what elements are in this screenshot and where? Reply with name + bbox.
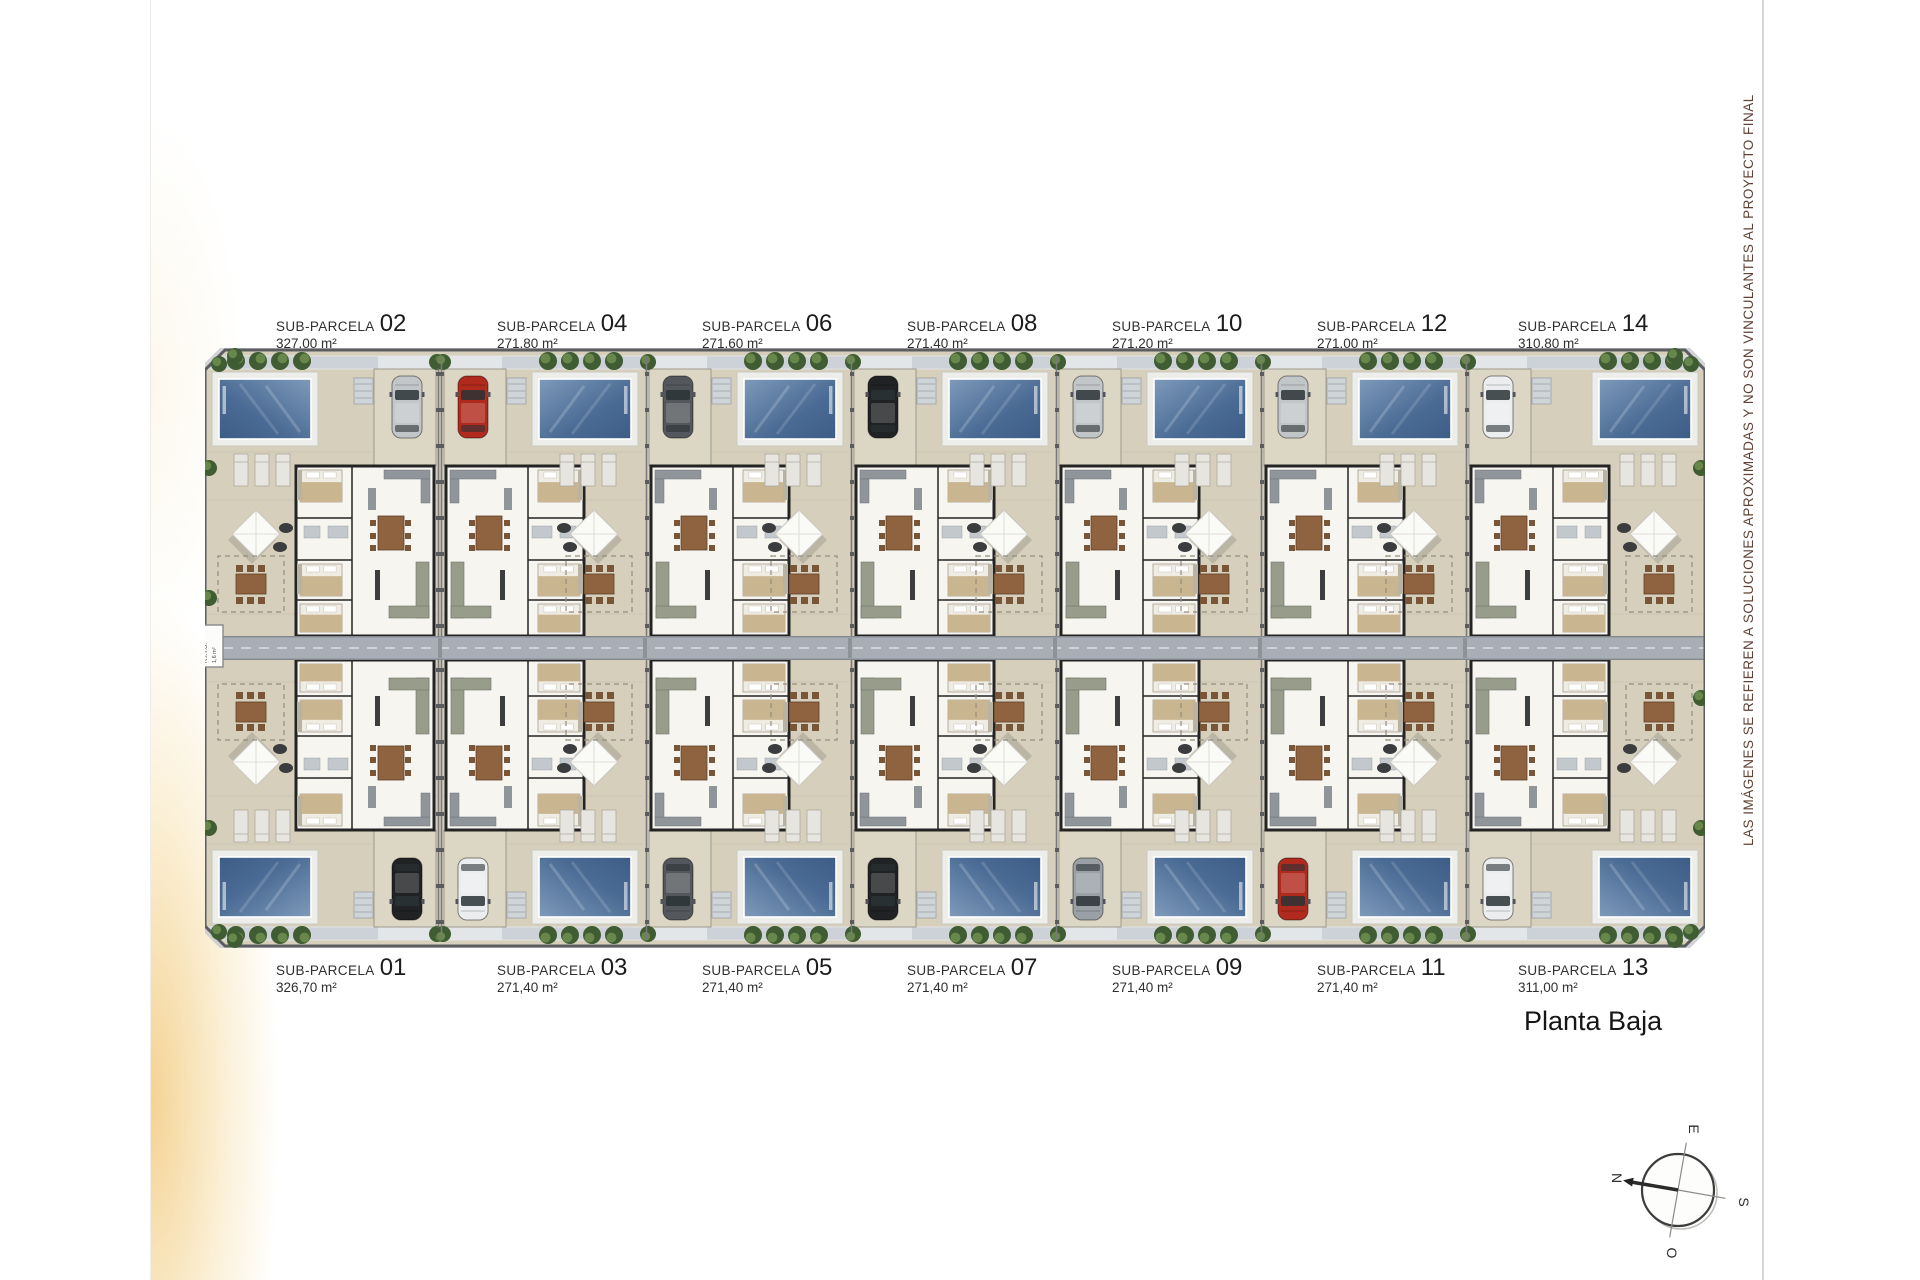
parcel-03	[435, 660, 645, 944]
parcel-area: 271,40 m²	[497, 980, 627, 995]
pool	[737, 372, 843, 446]
parcel-label-07: SUB-PARCELA07271,40 m²	[907, 954, 1037, 995]
parcel-area: 271,40 m²	[1112, 980, 1242, 995]
parcel-label-prefix: SUB-PARCELA	[497, 319, 596, 334]
compass-o-label: O	[1664, 1248, 1680, 1259]
sun-lounger	[1217, 454, 1231, 486]
house	[446, 466, 584, 636]
parcel-label-prefix: SUB-PARCELA	[1112, 963, 1211, 978]
pool	[942, 850, 1048, 924]
parcel-area: 326,70 m²	[276, 980, 406, 995]
parcel-10	[1050, 352, 1260, 636]
parcel-number: 02	[380, 310, 407, 338]
sun-lounger	[970, 810, 984, 842]
house	[296, 660, 434, 830]
entry-steps	[354, 892, 373, 918]
sun-lounger	[1196, 454, 1210, 486]
house	[856, 466, 994, 636]
house	[1061, 660, 1199, 830]
sun-lounger	[1422, 810, 1436, 842]
pool	[212, 372, 318, 446]
car	[1071, 858, 1106, 920]
sun-lounger	[1401, 454, 1415, 486]
sun-lounger	[1380, 810, 1394, 842]
car	[390, 376, 425, 438]
entry-steps	[917, 892, 936, 918]
pool	[1592, 850, 1698, 924]
entry-steps	[507, 378, 526, 404]
house	[1266, 466, 1404, 636]
parcel-label-10: SUB-PARCELA10271,20 m²	[1112, 310, 1242, 351]
house	[1471, 466, 1609, 636]
house	[446, 660, 584, 830]
sun-lounger	[1012, 810, 1026, 842]
car	[866, 376, 901, 438]
parcel-label-prefix: SUB-PARCELA	[1317, 963, 1416, 978]
bottom-parcel-labels: SUB-PARCELA01326,70 m²SUB-PARCELA03271,4…	[0, 954, 1920, 1000]
house	[1266, 660, 1404, 830]
parcel-label-prefix: SUB-PARCELA	[276, 963, 375, 978]
parcel-label-03: SUB-PARCELA03271,40 m²	[497, 954, 627, 995]
car	[390, 858, 425, 920]
page-left-edge	[150, 0, 151, 1280]
parcel-number: 10	[1216, 310, 1243, 338]
car	[1481, 376, 1516, 438]
sun-lounger	[1196, 810, 1210, 842]
parcel-label-11: SUB-PARCELA11271,40 m²	[1317, 954, 1446, 995]
pool	[1352, 372, 1458, 446]
sun-lounger	[602, 454, 616, 486]
sun-lounger	[581, 454, 595, 486]
entry-steps	[1327, 378, 1346, 404]
sun-lounger	[765, 454, 779, 486]
parcel-14	[1460, 352, 1705, 636]
house	[1061, 466, 1199, 636]
pool	[1147, 372, 1253, 446]
parcel-label-04: SUB-PARCELA04271,80 m²	[497, 310, 627, 351]
entry-steps	[354, 378, 373, 404]
sun-lounger	[1641, 810, 1655, 842]
parcel-label-prefix: SUB-PARCELA	[1317, 319, 1416, 334]
pool	[1147, 850, 1253, 924]
sun-lounger	[276, 810, 290, 842]
pool	[532, 850, 638, 924]
floor-label: Planta Baja	[1524, 1006, 1662, 1037]
parcel-number: 01	[380, 954, 407, 982]
site-plan: R.I.T.U.1,6 m²	[205, 348, 1705, 948]
parcel-label-prefix: SUB-PARCELA	[907, 963, 1006, 978]
parcel-01	[205, 660, 445, 944]
sun-lounger	[1401, 810, 1415, 842]
parcel-12	[1255, 352, 1465, 636]
pool	[737, 850, 843, 924]
parcel-number: 06	[806, 310, 833, 338]
ritu-box: R.I.T.U.1,6 m²	[205, 625, 223, 667]
entry-steps	[1532, 378, 1551, 404]
parcel-area: 271,40 m²	[702, 980, 832, 995]
entry-steps	[712, 378, 731, 404]
sun-lounger	[276, 454, 290, 486]
car	[1276, 858, 1311, 920]
pool	[532, 372, 638, 446]
entry-steps	[1122, 892, 1141, 918]
sun-lounger	[234, 454, 248, 486]
parcel-label-prefix: SUB-PARCELA	[497, 963, 596, 978]
entry-steps	[712, 892, 731, 918]
sun-lounger	[602, 810, 616, 842]
sun-lounger	[560, 454, 574, 486]
parcel-number: 13	[1622, 954, 1649, 982]
parcel-label-prefix: SUB-PARCELA	[276, 319, 375, 334]
sun-lounger	[765, 810, 779, 842]
parcel-number: 05	[806, 954, 833, 982]
sun-lounger	[1012, 454, 1026, 486]
disclaimer-text: LAS IMÁGENES SE REFIEREN A SOLUCIONES AP…	[1741, 34, 1756, 846]
pool	[1352, 850, 1458, 924]
pool	[1592, 372, 1698, 446]
pool	[942, 372, 1048, 446]
sun-lounger	[991, 454, 1005, 486]
sun-lounger	[234, 810, 248, 842]
parcel-label-prefix: SUB-PARCELA	[702, 963, 801, 978]
pool	[212, 850, 318, 924]
house	[651, 660, 789, 830]
parcel-number: 11	[1421, 954, 1446, 982]
sun-lounger	[786, 810, 800, 842]
parcel-area: 271,40 m²	[1317, 980, 1446, 995]
parcel-04	[435, 352, 645, 636]
parcel-number: 09	[1216, 954, 1243, 982]
house	[1471, 660, 1609, 830]
parcel-06	[640, 352, 850, 636]
parcel-02	[205, 352, 445, 636]
car	[1071, 376, 1106, 438]
parcel-label-05: SUB-PARCELA05271,40 m²	[702, 954, 832, 995]
parcel-label-prefix: SUB-PARCELA	[1518, 963, 1617, 978]
sun-lounger	[255, 810, 269, 842]
sun-lounger	[560, 810, 574, 842]
sun-lounger	[1662, 454, 1676, 486]
sun-lounger	[807, 810, 821, 842]
sun-lounger	[1620, 454, 1634, 486]
parcel-label-14: SUB-PARCELA14310,80 m²	[1518, 310, 1648, 351]
entry-steps	[917, 378, 936, 404]
parcel-07	[845, 660, 1055, 944]
house	[651, 466, 789, 636]
car	[456, 858, 491, 920]
parcel-08	[845, 352, 1055, 636]
parcel-label-06: SUB-PARCELA06271,60 m²	[702, 310, 832, 351]
parcel-13	[1460, 660, 1705, 944]
parcel-label-02: SUB-PARCELA02327,00 m²	[276, 310, 406, 351]
parcel-label-prefix: SUB-PARCELA	[1518, 319, 1617, 334]
sun-lounger	[1175, 454, 1189, 486]
compass-rose: NESO	[1593, 1110, 1763, 1280]
parcel-area: 271,40 m²	[907, 980, 1037, 995]
car	[456, 376, 491, 438]
sun-lounger	[1620, 810, 1634, 842]
parcel-label-prefix: SUB-PARCELA	[907, 319, 1006, 334]
parcel-label-09: SUB-PARCELA09271,40 m²	[1112, 954, 1242, 995]
entry-steps	[1327, 892, 1346, 918]
parcel-label-prefix: SUB-PARCELA	[1112, 319, 1211, 334]
compass-n-label: N	[1609, 1173, 1625, 1183]
sun-lounger	[786, 454, 800, 486]
parcel-11	[1255, 660, 1465, 944]
compass-s-label: S	[1736, 1197, 1752, 1206]
parcel-label-12: SUB-PARCELA12271,00 m²	[1317, 310, 1447, 351]
sun-lounger	[581, 810, 595, 842]
parcel-09	[1050, 660, 1260, 944]
car	[661, 376, 696, 438]
compass-e-label: E	[1686, 1124, 1702, 1133]
parcel-number: 14	[1622, 310, 1649, 338]
parcel-label-08: SUB-PARCELA08271,40 m²	[907, 310, 1037, 351]
car	[866, 858, 901, 920]
parcel-label-prefix: SUB-PARCELA	[702, 319, 801, 334]
page-right-edge	[1762, 0, 1764, 1280]
sun-lounger	[991, 810, 1005, 842]
entry-steps	[1122, 378, 1141, 404]
parcel-area: 311,00 m²	[1518, 980, 1648, 995]
sun-lounger	[1662, 810, 1676, 842]
sun-lounger	[1422, 454, 1436, 486]
parcel-number: 12	[1421, 310, 1448, 338]
sun-lounger	[255, 454, 269, 486]
parcel-number: 03	[601, 954, 628, 982]
sun-lounger	[1380, 454, 1394, 486]
house	[856, 660, 994, 830]
svg-text:R.I.T.U.: R.I.T.U.	[205, 643, 209, 663]
entry-steps	[1532, 892, 1551, 918]
parcel-number: 07	[1011, 954, 1038, 982]
parcel-number: 08	[1011, 310, 1038, 338]
car	[661, 858, 696, 920]
sun-lounger	[1641, 454, 1655, 486]
sun-lounger	[1175, 810, 1189, 842]
sun-lounger	[1217, 810, 1231, 842]
parcel-05	[640, 660, 850, 944]
parcel-number: 04	[601, 310, 628, 338]
svg-text:1,6 m²: 1,6 m²	[212, 647, 218, 663]
car	[1276, 376, 1311, 438]
entry-steps	[507, 892, 526, 918]
parcel-label-13: SUB-PARCELA13311,00 m²	[1518, 954, 1648, 995]
road	[205, 636, 1705, 660]
sun-lounger	[970, 454, 984, 486]
car	[1481, 858, 1516, 920]
sun-lounger	[807, 454, 821, 486]
house	[296, 466, 434, 636]
parcel-label-01: SUB-PARCELA01326,70 m²	[276, 954, 406, 995]
